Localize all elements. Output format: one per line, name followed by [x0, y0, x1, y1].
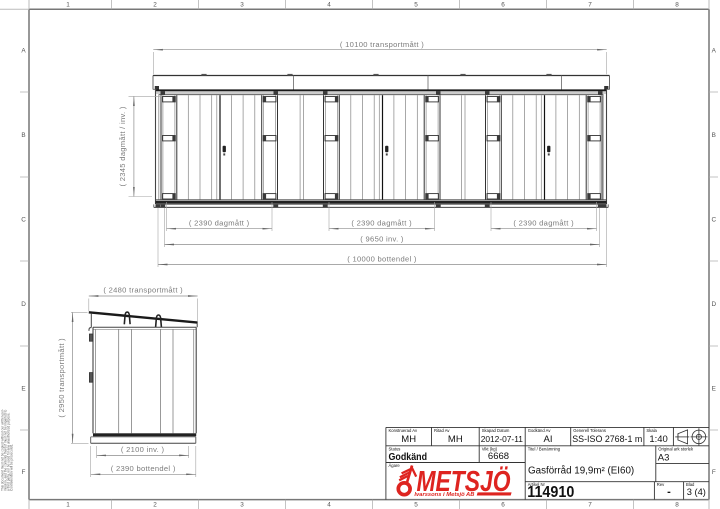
- svg-text:( 10100 transportmått ): ( 10100 transportmått ): [340, 40, 424, 49]
- svg-text:-: -: [667, 486, 671, 498]
- svg-text:( 2480 transportmått ): ( 2480 transportmått ): [103, 286, 183, 295]
- svg-text:E: E: [21, 385, 25, 392]
- svg-text:B: B: [21, 132, 25, 139]
- svg-text:A3: A3: [658, 453, 670, 464]
- svg-text:8: 8: [675, 502, 679, 509]
- svg-text:AI: AI: [544, 434, 553, 445]
- svg-text:Original ark storlek: Original ark storlek: [658, 447, 694, 452]
- svg-text:7: 7: [588, 502, 592, 509]
- svg-text:6: 6: [501, 502, 505, 509]
- svg-text:3: 3: [240, 2, 244, 9]
- svg-text:Contravention will be prosecut: Contravention will be prosecuted.: [10, 444, 14, 491]
- svg-text:MH: MH: [401, 434, 416, 445]
- svg-text:( 2390 dagmått ): ( 2390 dagmått ): [513, 218, 574, 227]
- svg-text:1:40: 1:40: [649, 434, 668, 445]
- svg-text:5: 5: [414, 2, 418, 9]
- svg-text:6668: 6668: [488, 451, 509, 462]
- svg-text:3 (4): 3 (4): [687, 487, 706, 497]
- svg-text:1: 1: [66, 2, 70, 9]
- svg-text:D: D: [711, 301, 716, 308]
- svg-text:( 10000 bottendel ): ( 10000 bottendel ): [347, 254, 417, 263]
- svg-text:Skala: Skala: [646, 428, 657, 433]
- svg-text:Rev: Rev: [657, 482, 665, 487]
- svg-text:Konstruerad Av: Konstruerad Av: [389, 428, 418, 433]
- svg-text:( 2100 inv. ): ( 2100 inv. ): [121, 445, 165, 454]
- svg-text:Godkänd: Godkänd: [389, 452, 428, 463]
- svg-text:MH: MH: [448, 434, 463, 445]
- svg-text:F: F: [22, 469, 26, 476]
- svg-text:6: 6: [501, 2, 505, 9]
- svg-text:2: 2: [153, 2, 157, 9]
- svg-text:114910: 114910: [527, 484, 574, 501]
- svg-text:( 2390 bottendel ): ( 2390 bottendel ): [111, 464, 176, 473]
- svg-text:( 2950 transportmått ): ( 2950 transportmått ): [57, 338, 66, 418]
- svg-text:Ritad Av: Ritad Av: [434, 428, 450, 433]
- svg-text:SS-ISO 2768-1 m: SS-ISO 2768-1 m: [572, 434, 642, 444]
- svg-text:7: 7: [588, 2, 592, 9]
- svg-text:4: 4: [327, 2, 331, 9]
- svg-text:5: 5: [414, 502, 418, 509]
- svg-text:F: F: [712, 469, 716, 476]
- svg-text:E: E: [712, 385, 716, 392]
- svg-text:B: B: [712, 132, 716, 139]
- svg-text:Skapad Datum: Skapad Datum: [482, 428, 510, 433]
- svg-text:C: C: [711, 216, 716, 223]
- svg-text:Ägare: Ägare: [389, 463, 401, 468]
- svg-text:Gasförråd 19,9m² (EI60): Gasförråd 19,9m² (EI60): [528, 466, 634, 477]
- svg-text:Godkänd Av: Godkänd Av: [528, 428, 552, 433]
- svg-text:Ivarssons i Metsjö AB: Ivarssons i Metsjö AB: [414, 492, 474, 498]
- svg-text:4: 4: [327, 502, 331, 509]
- svg-text:2012-07-11: 2012-07-11: [481, 434, 524, 444]
- svg-text:Generell Tolerans: Generell Tolerans: [573, 428, 606, 433]
- svg-text:( 2390 dagmått ): ( 2390 dagmått ): [351, 218, 412, 227]
- svg-text:D: D: [21, 301, 26, 308]
- svg-text:( 9650 inv. ): ( 9650 inv. ): [360, 235, 404, 244]
- svg-text:3: 3: [240, 502, 244, 509]
- svg-text:C: C: [21, 216, 26, 223]
- svg-text:Titel / Benämning: Titel / Benämning: [528, 447, 561, 452]
- svg-text:1: 1: [66, 502, 70, 509]
- svg-text:A: A: [712, 47, 717, 54]
- svg-text:( 2390 dagmått ): ( 2390 dagmått ): [189, 218, 250, 227]
- svg-text:2: 2: [153, 502, 157, 509]
- svg-text:8: 8: [675, 2, 679, 9]
- svg-text:A: A: [21, 47, 26, 54]
- svg-text:( 2345 dagmått / inv. ): ( 2345 dagmått / inv. ): [118, 106, 127, 186]
